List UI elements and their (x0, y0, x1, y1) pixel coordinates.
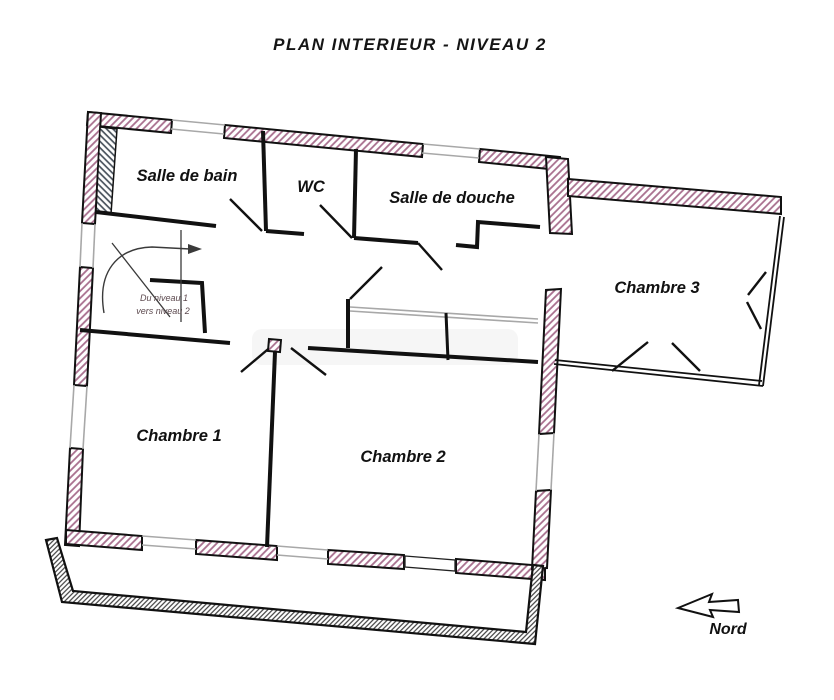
window-bottom-2-outer (277, 546, 328, 550)
window-left-1-inner (93, 224, 95, 268)
label-chambre-3: Chambre 3 (614, 279, 699, 297)
wall-left-2 (74, 267, 93, 386)
window-bottom-1-inner (142, 545, 196, 549)
window-right-outer (551, 433, 554, 490)
bedroom1-bedroom2-partition (267, 352, 275, 547)
hall-door-leaf (350, 267, 382, 299)
window-left-1-outer (80, 223, 82, 267)
shower-door-leaf (418, 243, 442, 270)
wing-window-leaf-1 (748, 272, 766, 295)
floor-plan-drawing: PLAN INTERIEUR - NIVEAU 2 (0, 0, 834, 700)
wall-bottom-3 (328, 550, 404, 569)
bedroom1-north-wall (80, 330, 230, 343)
window-top-2-outer (423, 144, 480, 149)
stair-label-line2: vers niveau 2 (136, 306, 190, 316)
wc-shower-partition (354, 149, 356, 238)
wall-top-2 (224, 125, 423, 157)
bathroom-south-wall (96, 212, 216, 226)
wing-glazed-walls (554, 216, 784, 386)
wall-wing-top (568, 179, 781, 214)
compass: Nord (678, 594, 748, 638)
stair-label-line1: Du niveau 1 (140, 293, 188, 303)
window-bottom-1-outer (142, 536, 196, 540)
window-bottom-2-inner (277, 555, 328, 559)
label-wc: WC (297, 178, 326, 196)
window-left-2-inner (83, 386, 87, 449)
wing-bottom-wall-inner (555, 360, 762, 381)
window-top-1-inner (171, 129, 224, 134)
wing-right-wall-inner (759, 216, 780, 385)
wc-door-leaf (320, 205, 352, 238)
label-chambre-1: Chambre 1 (136, 427, 221, 445)
bathroom-wc-partition (263, 131, 266, 231)
wing-bottom-wall-outer (554, 364, 763, 386)
wall-right-1 (539, 289, 561, 434)
window-top-2-inner (422, 153, 479, 158)
wall-bottom-2 (196, 540, 277, 560)
wing-right-wall-outer (763, 217, 784, 386)
room-labels: Salle de bain WC Salle de douche Chambre… (136, 167, 699, 466)
inner-lining-strip (96, 127, 117, 214)
stair-arrow-head (188, 244, 202, 254)
door-post (268, 339, 281, 352)
closet-divider (446, 313, 448, 360)
wall-right-2 (532, 490, 551, 569)
label-chambre-2: Chambre 2 (360, 448, 445, 466)
balcony-band (46, 538, 543, 644)
balcony-door-threshold (405, 556, 455, 571)
wc-south-wall (266, 231, 304, 234)
wall-bottom-1 (66, 530, 142, 550)
north-label: Nord (709, 621, 748, 638)
plan-title: PLAN INTERIEUR - NIVEAU 2 (273, 35, 547, 54)
shower-south-jog-wall (456, 222, 540, 247)
staircase: Du niveau 1 vers niveau 2 (103, 230, 202, 322)
wing-door-leaf-1 (612, 342, 648, 371)
label-salle-de-bain: Salle de bain (137, 167, 238, 185)
window-top-1-outer (172, 120, 225, 125)
window-right-inner (536, 434, 539, 491)
label-salle-de-douche: Salle de douche (389, 189, 515, 207)
shower-south-wall (354, 238, 418, 243)
wing-window-leaf-2 (747, 302, 761, 329)
north-arrow-icon (678, 594, 739, 617)
floor-plan-page: PLAN INTERIEUR - NIVEAU 2 (0, 0, 834, 700)
bathroom-door-leaf (230, 199, 262, 231)
window-left-2-outer (70, 385, 74, 448)
wing-door-leaf-2 (672, 343, 700, 371)
